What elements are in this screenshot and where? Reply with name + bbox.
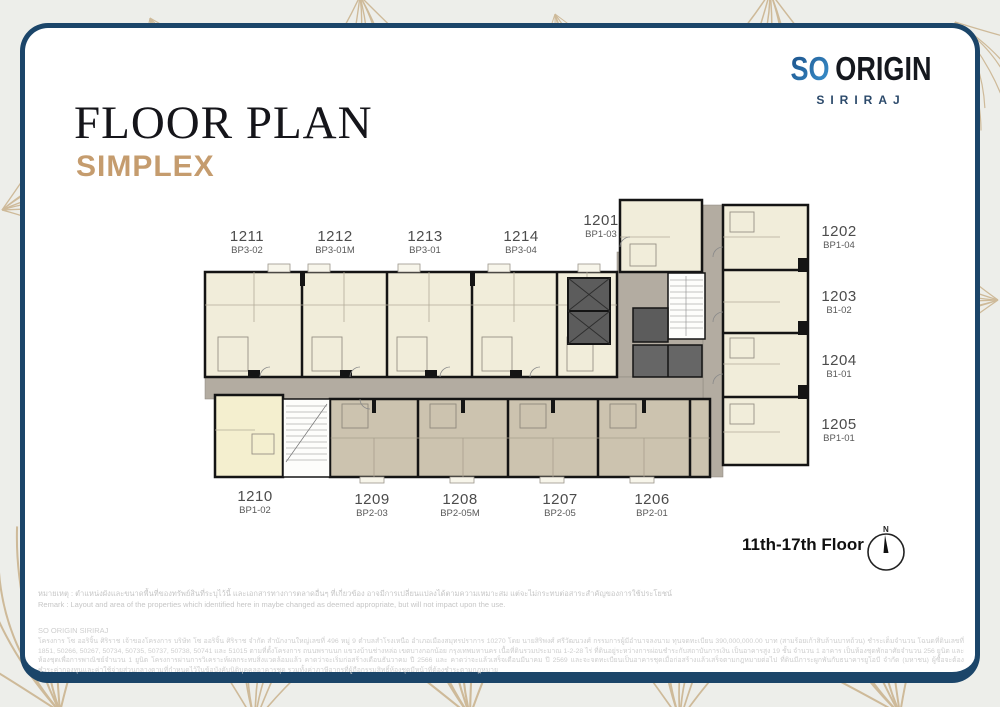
unit-number: 1214: [479, 229, 563, 245]
compass-icon: N: [862, 524, 910, 574]
brochure-page: SOORIGIN SIRIRAJ FLOOR PLAN SIMPLEX: [0, 0, 1000, 707]
compass-north-label: N: [883, 525, 889, 534]
unit-label-1204: 1204B1-01: [797, 353, 881, 381]
unit-type: BP2-05M: [418, 508, 502, 520]
unit-type: B1-01: [797, 369, 881, 381]
unit-label-1203: 1203B1-02: [797, 289, 881, 317]
page-subtitle: SIMPLEX: [76, 150, 215, 184]
unit-label-1213: 1213BP3-01: [383, 229, 467, 257]
unit-number: 1209: [330, 492, 414, 508]
logo-origin-text: ORIGIN: [835, 50, 931, 87]
unit-number: 1212: [293, 229, 377, 245]
unit-label-1206: 1206BP2-01: [610, 492, 694, 520]
unit-number: 1208: [418, 492, 502, 508]
logo-so-text: SO: [790, 50, 829, 87]
logo-subtitle: SIRIRAJ: [766, 93, 956, 107]
unit-label-1207: 1207BP2-05: [518, 492, 602, 520]
unit-type: BP3-02: [205, 245, 289, 257]
unit-number: 1213: [383, 229, 467, 245]
unit-number: 1203: [797, 289, 881, 305]
unit-type: BP1-03: [559, 229, 643, 241]
unit-label-1208: 1208BP2-05M: [418, 492, 502, 520]
disclaimer-heading: SO ORIGIN SIRIRAJ: [38, 626, 964, 635]
brand-logo: SOORIGIN SIRIRAJ: [766, 50, 956, 107]
unit-type: BP2-03: [330, 508, 414, 520]
unit-type: BP1-04: [797, 240, 881, 252]
unit-type: BP3-01: [383, 245, 467, 257]
remark-text: หมายเหตุ : ตำแหน่งผังและขนาดพื้นที่ของทร…: [38, 589, 672, 610]
unit-number: 1211: [205, 229, 289, 245]
unit-type: BP3-04: [479, 245, 563, 257]
unit-number: 1207: [518, 492, 602, 508]
page-title: FLOOR PLAN: [74, 96, 373, 150]
unit-type: BP1-01: [797, 433, 881, 445]
unit-type: BP2-05: [518, 508, 602, 520]
remark-english: Remark : Layout and area of the properti…: [38, 600, 672, 611]
unit-number: 1202: [797, 224, 881, 240]
unit-label-1211: 1211BP3-02: [205, 229, 289, 257]
unit-label-1202: 1202BP1-04: [797, 224, 881, 252]
unit-number: 1204: [797, 353, 881, 369]
unit-number: 1206: [610, 492, 694, 508]
logo-wordmark: SOORIGIN: [783, 50, 939, 88]
unit-label-1201: 1201BP1-03: [559, 213, 643, 241]
unit-type: B1-02: [797, 305, 881, 317]
legal-disclaimer: SO ORIGIN SIRIRAJ โครงการ โซ ออริจิ้น ศิ…: [38, 626, 964, 675]
unit-label-1209: 1209BP2-03: [330, 492, 414, 520]
unit-type: BP1-02: [213, 505, 297, 517]
unit-type: BP2-01: [610, 508, 694, 520]
unit-number: 1205: [797, 417, 881, 433]
unit-number: 1210: [213, 489, 297, 505]
unit-label-1210: 1210BP1-02: [213, 489, 297, 517]
floor-range-label: 11th-17th Floor: [742, 535, 864, 555]
remark-thai: หมายเหตุ : ตำแหน่งผังและขนาดพื้นที่ของทร…: [38, 589, 672, 600]
unit-number: 1201: [559, 213, 643, 229]
unit-label-1214: 1214BP3-04: [479, 229, 563, 257]
disclaimer-body: โครงการ โซ ออริจิ้น ศิริราช เจ้าของโครงก…: [38, 637, 964, 675]
unit-label-1212: 1212BP3-01M: [293, 229, 377, 257]
unit-label-1205: 1205BP1-01: [797, 417, 881, 445]
unit-type: BP3-01M: [293, 245, 377, 257]
